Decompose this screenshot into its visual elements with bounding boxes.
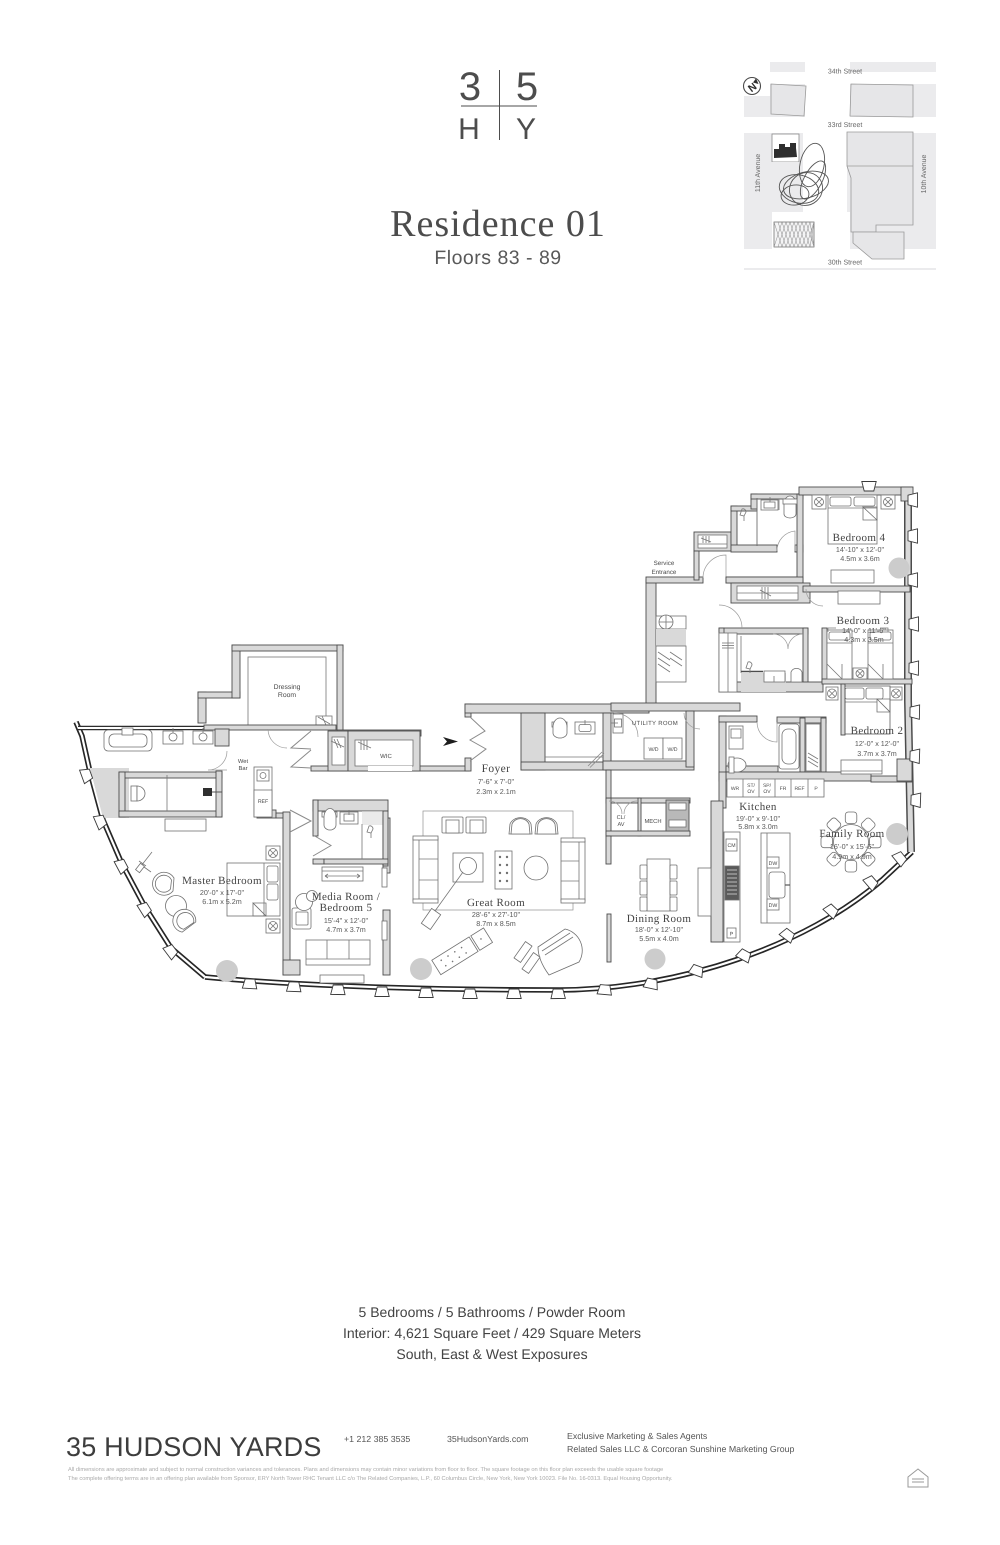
svg-text:33rd Street: 33rd Street bbox=[828, 121, 863, 129]
svg-text:Dressing: Dressing bbox=[274, 684, 301, 691]
svg-text:REF: REF bbox=[795, 786, 805, 792]
svg-text:4.5m x 3.6m: 4.5m x 3.6m bbox=[840, 554, 880, 563]
svg-text:2.3m x 2.1m: 2.3m x 2.1m bbox=[476, 787, 516, 796]
svg-text:Entrance: Entrance bbox=[652, 569, 677, 576]
svg-text:Bedroom 4: Bedroom 4 bbox=[833, 532, 886, 544]
svg-text:Wet: Wet bbox=[238, 759, 249, 765]
svg-text:DW: DW bbox=[769, 903, 778, 909]
svg-text:5 Bedrooms / 5 Bathrooms / Pow: 5 Bedrooms / 5 Bathrooms / Powder Room bbox=[359, 1304, 626, 1320]
svg-text:FR: FR bbox=[780, 786, 787, 792]
svg-text:Bedroom 2: Bedroom 2 bbox=[851, 725, 904, 737]
svg-text:5.5m x 4.0m: 5.5m x 4.0m bbox=[639, 934, 679, 943]
svg-text:4.3m x 3.5m: 4.3m x 3.5m bbox=[844, 635, 884, 644]
svg-text:16'-0" x 15'-6": 16'-0" x 15'-6" bbox=[830, 842, 875, 851]
svg-text:CM: CM bbox=[727, 843, 735, 849]
svg-text:15'-4" x 12'-0": 15'-4" x 12'-0" bbox=[324, 916, 369, 925]
svg-text:28'-6" x 27'-10": 28'-6" x 27'-10" bbox=[472, 910, 521, 919]
svg-text:Master Bedroom: Master Bedroom bbox=[182, 875, 262, 887]
svg-text:Bar: Bar bbox=[238, 766, 247, 772]
svg-text:Residence 01: Residence 01 bbox=[390, 203, 606, 245]
svg-text:14'-0" x 11'-6": 14'-0" x 11'-6" bbox=[842, 626, 886, 635]
svg-text:5.8m x 3.0m: 5.8m x 3.0m bbox=[738, 822, 778, 831]
svg-text:Related Sales LLC & Corcoran S: Related Sales LLC & Corcoran Sunshine Ma… bbox=[567, 1444, 794, 1454]
svg-text:Dining Room: Dining Room bbox=[627, 913, 692, 925]
svg-text:6.1m x 5.2m: 6.1m x 5.2m bbox=[202, 897, 242, 906]
svg-text:WR: WR bbox=[731, 786, 740, 792]
svg-text:10th Avenue: 10th Avenue bbox=[920, 155, 928, 194]
svg-text:4.9m x 4.9m: 4.9m x 4.9m bbox=[832, 852, 872, 861]
svg-text:5: 5 bbox=[516, 65, 538, 109]
svg-text:UTILITY ROOM: UTILITY ROOM bbox=[632, 720, 678, 727]
svg-text:14'-10" x 12'-0": 14'-10" x 12'-0" bbox=[836, 545, 885, 554]
svg-text:18'-0" x 12'-10": 18'-0" x 12'-10" bbox=[635, 925, 684, 934]
svg-text:Kitchen: Kitchen bbox=[739, 801, 777, 813]
svg-text:W/D: W/D bbox=[648, 747, 658, 753]
svg-text:12'-0" x 12'-0": 12'-0" x 12'-0" bbox=[855, 739, 900, 748]
svg-text:OV: OV bbox=[763, 789, 771, 795]
svg-text:All dimensions are approximate: All dimensions are approximate and subje… bbox=[68, 1466, 663, 1473]
svg-text:8.7m x 8.5m: 8.7m x 8.5m bbox=[476, 919, 516, 928]
svg-text:Room: Room bbox=[278, 692, 296, 699]
svg-text:+1 212 385 3535: +1 212 385 3535 bbox=[344, 1434, 410, 1444]
svg-text:20'-0" x 17'-0": 20'-0" x 17'-0" bbox=[200, 888, 245, 897]
svg-text:11th Avenue: 11th Avenue bbox=[754, 154, 762, 192]
svg-text:Great Room: Great Room bbox=[467, 897, 525, 909]
svg-text:Bedroom 5: Bedroom 5 bbox=[320, 902, 373, 914]
svg-text:P: P bbox=[730, 932, 734, 938]
svg-text:Service: Service bbox=[654, 560, 675, 567]
svg-text:3.7m x 3.7m: 3.7m x 3.7m bbox=[857, 749, 897, 758]
svg-text:The complete offering terms ar: The complete offering terms are in an of… bbox=[68, 1475, 673, 1482]
svg-text:Exclusive Marketing & Sales Ag: Exclusive Marketing & Sales Agents bbox=[567, 1431, 708, 1441]
svg-text:Floors 83 - 89: Floors 83 - 89 bbox=[434, 247, 561, 269]
svg-text:Family Room: Family Room bbox=[819, 828, 884, 840]
svg-text:DW: DW bbox=[769, 861, 778, 867]
svg-text:35HudsonYards.com: 35HudsonYards.com bbox=[447, 1434, 529, 1444]
svg-text:Y: Y bbox=[516, 113, 536, 146]
svg-text:REF: REF bbox=[258, 799, 268, 805]
svg-text:H: H bbox=[458, 113, 480, 146]
svg-text:MECH: MECH bbox=[644, 818, 661, 825]
svg-text:30th Street: 30th Street bbox=[828, 259, 862, 267]
svg-text:35 HUDSON YARDS: 35 HUDSON YARDS bbox=[66, 1432, 322, 1462]
svg-text:3: 3 bbox=[459, 65, 481, 109]
svg-text:4.7m x 3.7m: 4.7m x 3.7m bbox=[326, 925, 366, 934]
svg-text:Foyer: Foyer bbox=[482, 763, 511, 775]
svg-text:W/D: W/D bbox=[667, 747, 677, 753]
svg-text:Interior: 4,621 Square Feet /: Interior: 4,621 Square Feet / 429 Square… bbox=[343, 1325, 641, 1341]
svg-text:OV: OV bbox=[747, 789, 755, 795]
svg-text:AV: AV bbox=[617, 822, 624, 828]
svg-text:CL/: CL/ bbox=[617, 814, 626, 821]
svg-text:34th Street: 34th Street bbox=[828, 68, 862, 76]
svg-text:South, East & West Exposures: South, East & West Exposures bbox=[396, 1346, 587, 1362]
svg-text:WIC: WIC bbox=[380, 753, 392, 760]
svg-text:7'-6" x 7'-0": 7'-6" x 7'-0" bbox=[478, 777, 515, 786]
